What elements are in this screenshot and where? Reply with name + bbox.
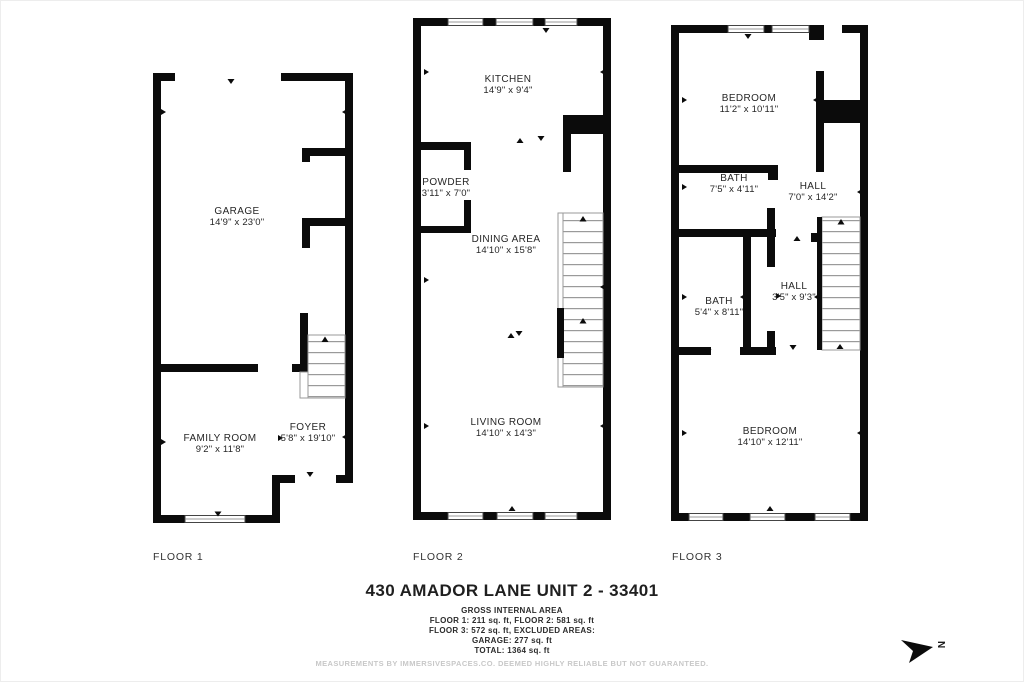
room-dims: 3'11" x 7'0" (422, 188, 471, 199)
floor2-stairs (557, 213, 603, 387)
floor3-label: FLOOR 3 (672, 551, 723, 563)
room-name: HALL (772, 281, 816, 292)
room-dims: 7'5" x 4'11" (710, 184, 759, 195)
floorplan-drawing: N (0, 0, 1024, 682)
floor2-windows-top (448, 19, 577, 26)
room-name: FOYER (281, 422, 336, 433)
room-dims: 5'8" x 19'10" (281, 433, 336, 444)
floor1-plan (153, 73, 353, 523)
room-label-bath-2: BATH 5'4" x 8'11" (695, 296, 744, 318)
room-dims: 11'2" x 10'11" (720, 104, 779, 115)
room-label-bedroom-1: BEDROOM 11'2" x 10'11" (720, 93, 779, 115)
floor1-window (185, 516, 245, 523)
room-label-powder: POWDER 3'11" x 7'0" (422, 177, 471, 199)
footer: 430 AMADOR LANE UNIT 2 - 33401 GROSS INT… (0, 581, 1024, 668)
room-dims: 14'10" x 14'3" (470, 428, 541, 439)
room-dims: 3'5" x 9'3" (772, 292, 816, 303)
room-dims: 14'10" x 12'11" (738, 437, 803, 448)
room-dims: 14'10" x 15'8" (472, 245, 541, 256)
area-line-3: GARAGE: 277 sq. ft (0, 636, 1024, 646)
room-dims: 7'0" x 14'2" (788, 192, 837, 203)
floorplan-canvas: N GARAGE 14'9" x 23'0" FAMILY ROOM 9'2" … (0, 0, 1024, 682)
area-line-1: FLOOR 1: 211 sq. ft, FLOOR 2: 581 sq. ft (0, 616, 1024, 626)
room-name: FAMILY ROOM (184, 433, 257, 444)
floor3-stairs (811, 217, 860, 350)
room-dims: 5'4" x 8'11" (695, 307, 744, 318)
floor1-label: FLOOR 1 (153, 551, 204, 563)
room-label-dining-area: DINING AREA 14'10" x 15'8" (472, 234, 541, 256)
room-name: BATH (710, 173, 759, 184)
room-name: BATH (695, 296, 744, 307)
room-label-bedroom-2: BEDROOM 14'10" x 12'11" (738, 426, 803, 448)
floor2-windows-bottom (448, 513, 577, 520)
room-label-family-room: FAMILY ROOM 9'2" x 11'8" (184, 433, 257, 455)
floor3-windows-bottom (689, 514, 850, 521)
room-dims: 9'2" x 11'8" (184, 444, 257, 455)
room-name: DINING AREA (472, 234, 541, 245)
room-name: KITCHEN (483, 74, 532, 85)
area-line-4: TOTAL: 1364 sq. ft (0, 646, 1024, 656)
room-name: POWDER (422, 177, 471, 188)
room-label-hall-1: HALL 7'0" x 14'2" (788, 181, 837, 203)
room-name: BEDROOM (720, 93, 779, 104)
gross-area-heading: GROSS INTERNAL AREA (0, 606, 1024, 616)
room-label-foyer: FOYER 5'8" x 19'10" (281, 422, 336, 444)
room-label-kitchen: KITCHEN 14'9" x 9'4" (483, 74, 532, 96)
room-label-living-room: LIVING ROOM 14'10" x 14'3" (470, 417, 541, 439)
room-name: GARAGE (210, 206, 265, 217)
measurement-disclaimer: MEASUREMENTS BY IMMERSIVESPACES.CO. DEEM… (0, 659, 1024, 668)
page-title: 430 AMADOR LANE UNIT 2 - 33401 (0, 581, 1024, 601)
room-label-bath-1: BATH 7'5" x 4'11" (710, 173, 759, 195)
area-line-2: FLOOR 3: 572 sq. ft, EXCLUDED AREAS: (0, 626, 1024, 636)
room-name: LIVING ROOM (470, 417, 541, 428)
room-label-hall-2: HALL 3'5" x 9'3" (772, 281, 816, 303)
floor2-label: FLOOR 2 (413, 551, 464, 563)
room-dims: 14'9" x 23'0" (210, 217, 265, 228)
room-name: HALL (788, 181, 837, 192)
room-dims: 14'9" x 9'4" (483, 85, 532, 96)
room-label-garage: GARAGE 14'9" x 23'0" (210, 206, 265, 228)
room-name: BEDROOM (738, 426, 803, 437)
